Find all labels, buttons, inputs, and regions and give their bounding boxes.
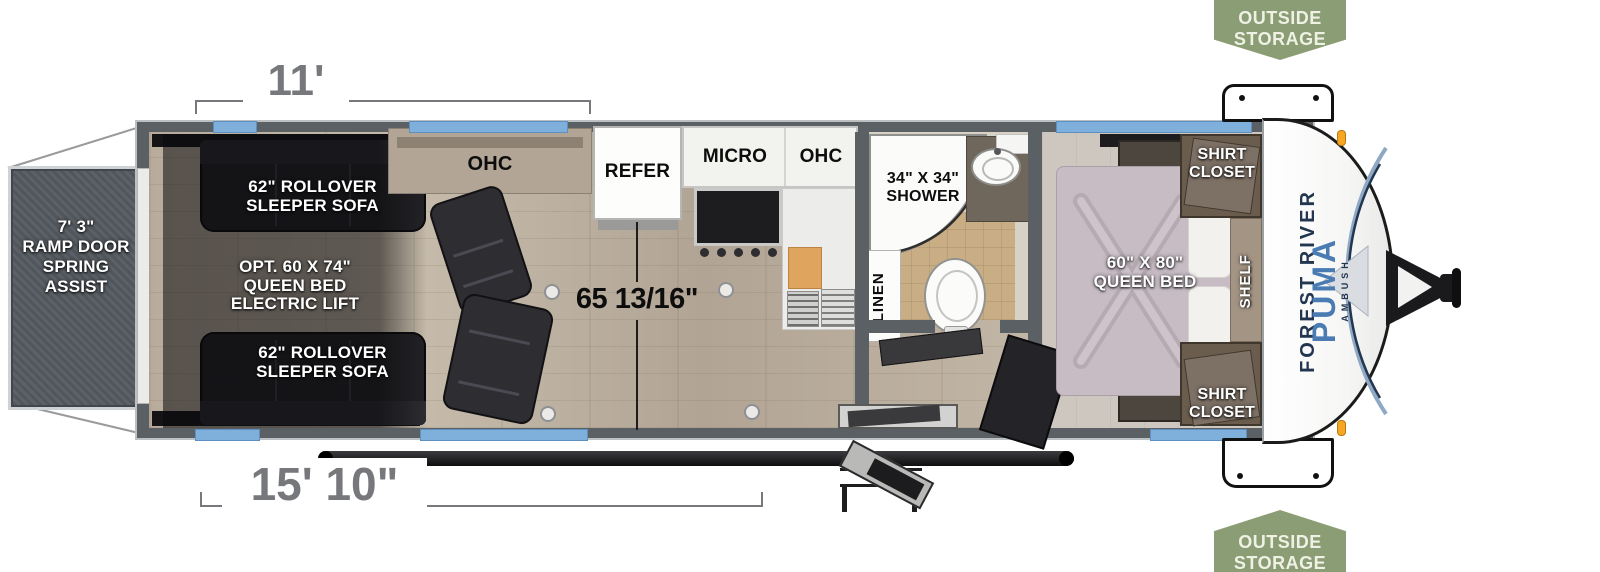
tie-down-ring — [544, 284, 560, 300]
window — [409, 121, 568, 133]
ramp-door: 7' 3" RAMP DOOR SPRING ASSIST — [8, 166, 144, 410]
tie-down-ring — [718, 282, 734, 298]
cargo-dimension-label: 15' 10" — [222, 458, 427, 510]
garage-dim-tick-right — [589, 100, 591, 114]
cooktop-knobs — [698, 248, 780, 258]
tie-down-ring — [540, 406, 556, 422]
cutting-board — [788, 247, 822, 289]
outside-storage-badge-bottom: OUTSIDE STORAGE — [1214, 510, 1346, 572]
cargo-dim-tick-right — [761, 492, 763, 507]
entry-step-well — [838, 404, 958, 429]
garage-dimension-label: 11' — [243, 56, 349, 106]
bedroom-shelf: SHELF — [1230, 218, 1262, 342]
puma-model-name: PUMA — [1308, 210, 1340, 370]
kitchen-counter — [782, 188, 858, 330]
puma-logotype: PUMA AMBUSH — [1308, 210, 1364, 370]
micro-label: MICRO — [690, 147, 780, 168]
outside-storage-badge-top: OUTSIDE STORAGE — [1214, 0, 1346, 60]
kitchen-upper-cabinets: MICRO OHC — [682, 126, 858, 188]
bathroom-wall-bottom-left — [855, 320, 935, 333]
refrigerator: REFER — [593, 126, 682, 220]
sink-cover — [821, 289, 855, 327]
height-dimension-label: 65 13/16" — [566, 284, 708, 316]
sink-cover — [787, 291, 819, 327]
sofa-top-label: 62" ROLLOVERSLEEPER SOFA — [215, 178, 410, 215]
height-dim-line-upper — [636, 222, 638, 282]
bathroom-wall-left — [855, 132, 869, 428]
puma-trim-name: AMBUSH — [1340, 210, 1350, 370]
shirt-closet-bottom-label: SHIRTCLOSET — [1184, 386, 1260, 421]
window — [213, 121, 257, 133]
awning-tube — [318, 451, 1074, 466]
refer-label: REFER — [595, 162, 680, 183]
tie-down-ring — [744, 404, 760, 420]
outside-storage-compartment-bottom — [1222, 438, 1334, 488]
window — [1056, 121, 1252, 133]
rv-floorplan-diagram: 7' 3" RAMP DOOR SPRING ASSIST OHC — [0, 0, 1600, 572]
outside-storage-compartment-top — [1222, 84, 1334, 122]
height-dim-line-lower — [636, 320, 638, 430]
cargo-dim-tick-left — [200, 492, 202, 507]
bed-lift-label: OPT. 60 X 74"QUEEN BEDELECTRIC LIFT — [200, 258, 390, 314]
window — [195, 429, 260, 441]
sofa-bottom-label: 62" ROLLOVERSLEEPER SOFA — [225, 344, 420, 381]
marker-light-bottom — [1337, 420, 1346, 436]
window — [420, 429, 588, 441]
ramp-door-label: 7' 3" — [11, 217, 141, 237]
queen-bed-label: 60" X 80"QUEEN BED — [1078, 254, 1212, 291]
ohc-living-label: OHC — [389, 153, 591, 175]
bathroom-wall-bottom-right — [1000, 320, 1042, 333]
overhead-cabinet-living: OHC — [388, 128, 592, 194]
shower-label: 34" X 34"SHOWER — [874, 170, 972, 205]
cooktop — [694, 188, 782, 246]
ohc-kitchen-label: OHC — [790, 147, 852, 168]
refrigerator-base — [598, 220, 678, 230]
shirt-closet-top-label: SHIRTCLOSET — [1184, 146, 1260, 181]
hitch-tongue — [1386, 244, 1464, 332]
garage-dim-tick-left — [195, 100, 197, 114]
bath-sink — [971, 148, 1021, 186]
shelf-label: SHELF — [1238, 236, 1255, 326]
marker-light-top — [1337, 130, 1346, 146]
entry-steps — [838, 446, 930, 514]
